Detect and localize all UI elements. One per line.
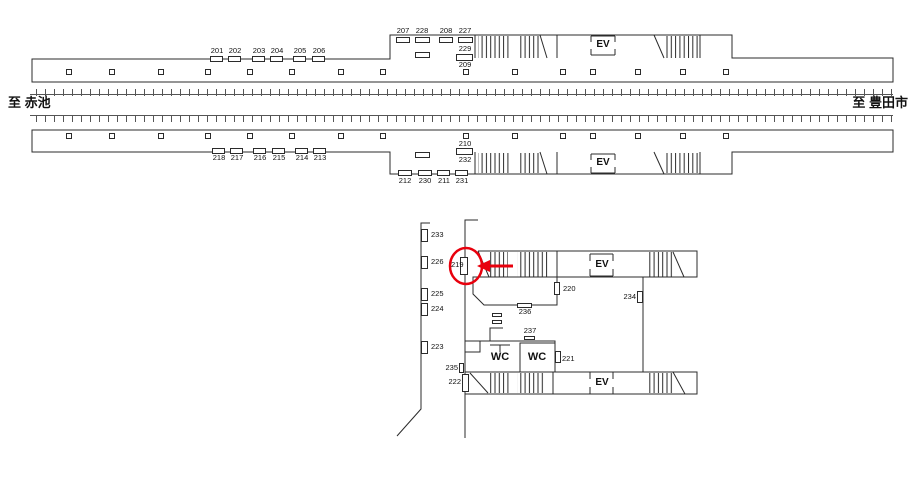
marker-237 <box>524 336 535 340</box>
pillar-platform2 <box>560 133 566 139</box>
marker-222 <box>462 374 469 392</box>
track-line-upper <box>30 89 893 96</box>
wc-label-left: WC <box>491 352 509 364</box>
pillar-platform1 <box>380 69 386 75</box>
direction-right: 至 豊田市 <box>852 96 908 110</box>
pillar-platform2 <box>635 133 641 139</box>
sign-label-236: 236 <box>519 308 532 316</box>
highlight-arrow-head <box>477 260 490 272</box>
sign-label-213: 213 <box>314 154 327 162</box>
pillar-platform1 <box>109 69 115 75</box>
marker-208 <box>439 37 453 43</box>
sign-label-231: 231 <box>456 177 469 185</box>
marker-equip-1 <box>492 313 502 317</box>
marker-207 <box>396 37 410 43</box>
sign-label-218: 218 <box>213 154 226 162</box>
pillar-platform1 <box>512 69 518 75</box>
pillar-platform1 <box>590 69 596 75</box>
marker-225 <box>421 288 428 301</box>
sign-label-232: 232 <box>459 156 472 164</box>
pillar-platform2 <box>512 133 518 139</box>
marker-226 <box>421 256 428 269</box>
sign-label-219: 219 <box>451 261 464 269</box>
pillar-platform2 <box>158 133 164 139</box>
station-sign-location-map: 2012022032042052062072282082272292092182… <box>0 0 919 491</box>
marker-235 <box>459 363 464 373</box>
sign-label-207: 207 <box>397 27 410 35</box>
platform-2-stairs-hatch-3 <box>664 153 700 173</box>
concourse-top-stairs-hatch-2 <box>517 252 550 277</box>
sign-label-211: 211 <box>438 177 450 185</box>
wc-label-right: WC <box>528 352 546 364</box>
platform-1-stairs-hatch-1 <box>478 36 510 58</box>
pillar-platform2 <box>109 133 115 139</box>
pillar-platform2 <box>66 133 72 139</box>
sign-label-205: 205 <box>294 47 307 55</box>
concourse-bottom-stairs-hatch-2 <box>517 373 545 393</box>
sign-label-234: 234 <box>623 293 636 301</box>
pillar-platform2 <box>205 133 211 139</box>
sign-label-223: 223 <box>431 343 444 351</box>
marker-227 <box>458 37 473 43</box>
pillar-platform2 <box>289 133 295 139</box>
marker-233 <box>421 229 428 242</box>
marker-203 <box>252 56 265 62</box>
pillar-platform1 <box>158 69 164 75</box>
sign-label-203: 203 <box>253 47 266 55</box>
sign-label-202: 202 <box>229 47 242 55</box>
sign-label-206: 206 <box>313 47 326 55</box>
sign-label-230: 230 <box>419 177 432 185</box>
sign-label-201: 201 <box>211 47 224 55</box>
sign-label-229: 229 <box>459 45 472 53</box>
pillar-platform1 <box>247 69 253 75</box>
marker-misc-p2 <box>415 152 430 158</box>
marker-220 <box>554 282 560 295</box>
sign-label-233: 233 <box>431 231 444 239</box>
pillar-platform1 <box>635 69 641 75</box>
sign-label-221: 221 <box>562 355 575 363</box>
sign-label-225: 225 <box>431 290 444 298</box>
sign-label-228: 228 <box>416 27 429 35</box>
pillar-platform1 <box>680 69 686 75</box>
sign-label-216: 216 <box>254 154 267 162</box>
sign-label-210: 210 <box>459 140 472 148</box>
map-linework <box>0 0 919 491</box>
platform-1-stairs-hatch-3 <box>664 36 700 58</box>
sign-label-222: 222 <box>448 378 461 386</box>
sign-label-209: 209 <box>459 61 472 69</box>
pillar-platform1 <box>205 69 211 75</box>
direction-left: 至 赤池 <box>8 96 51 110</box>
sign-label-217: 217 <box>231 154 244 162</box>
sign-label-237: 237 <box>524 327 537 335</box>
pillar-platform2 <box>247 133 253 139</box>
sign-label-215: 215 <box>273 154 286 162</box>
sign-label-226: 226 <box>431 258 444 266</box>
wc-block-corner-room <box>465 341 480 352</box>
sign-label-227: 227 <box>459 27 472 35</box>
platform-2-stairs-hatch-1 <box>478 153 510 173</box>
sign-label-224: 224 <box>431 305 444 313</box>
pillar-platform1 <box>66 69 72 75</box>
marker-210-232 <box>456 148 473 155</box>
pillar-platform2 <box>380 133 386 139</box>
elevator-label-platform1: EV <box>596 40 609 51</box>
pillar-platform2 <box>338 133 344 139</box>
elevator-label-concourse-top: EV <box>595 260 608 271</box>
pillar-platform1 <box>289 69 295 75</box>
elevator-label-platform2: EV <box>596 158 609 169</box>
sign-label-214: 214 <box>296 154 309 162</box>
marker-221 <box>555 351 561 363</box>
marker-234 <box>637 291 643 303</box>
sign-label-208: 208 <box>440 27 453 35</box>
pillar-platform2 <box>723 133 729 139</box>
pillar-platform2 <box>680 133 686 139</box>
pillar-platform1 <box>338 69 344 75</box>
concourse-bottom-stairs-hatch-1 <box>488 373 510 393</box>
sign-label-235: 235 <box>445 364 458 372</box>
elevator-label-concourse-bottom: EV <box>595 378 608 389</box>
track-line-lower <box>30 115 893 122</box>
marker-223 <box>421 341 428 354</box>
marker-228 <box>415 37 430 43</box>
marker-206 <box>312 56 325 62</box>
marker-misc-p1 <box>415 52 430 58</box>
concourse-outer-wall <box>397 223 430 436</box>
sign-label-212: 212 <box>399 177 412 185</box>
marker-205 <box>293 56 306 62</box>
marker-equip-2 <box>492 320 502 324</box>
sign-label-220: 220 <box>563 285 576 293</box>
marker-201 <box>210 56 223 62</box>
station-room <box>473 277 557 305</box>
partition-bracket <box>490 328 503 341</box>
marker-204 <box>270 56 283 62</box>
sign-label-204: 204 <box>271 47 284 55</box>
marker-202 <box>228 56 241 62</box>
pillar-platform1 <box>560 69 566 75</box>
platform-1-stairs-hatch-2 <box>519 36 540 58</box>
pillar-platform2 <box>590 133 596 139</box>
pillar-platform1 <box>723 69 729 75</box>
marker-224 <box>421 303 428 316</box>
platform-2-stairs-hatch-2 <box>519 153 540 173</box>
concourse-top-stairs-hatch-3 <box>648 252 673 277</box>
pillar-platform1 <box>463 69 469 75</box>
concourse-bottom-stairs-hatch-3 <box>648 373 673 393</box>
